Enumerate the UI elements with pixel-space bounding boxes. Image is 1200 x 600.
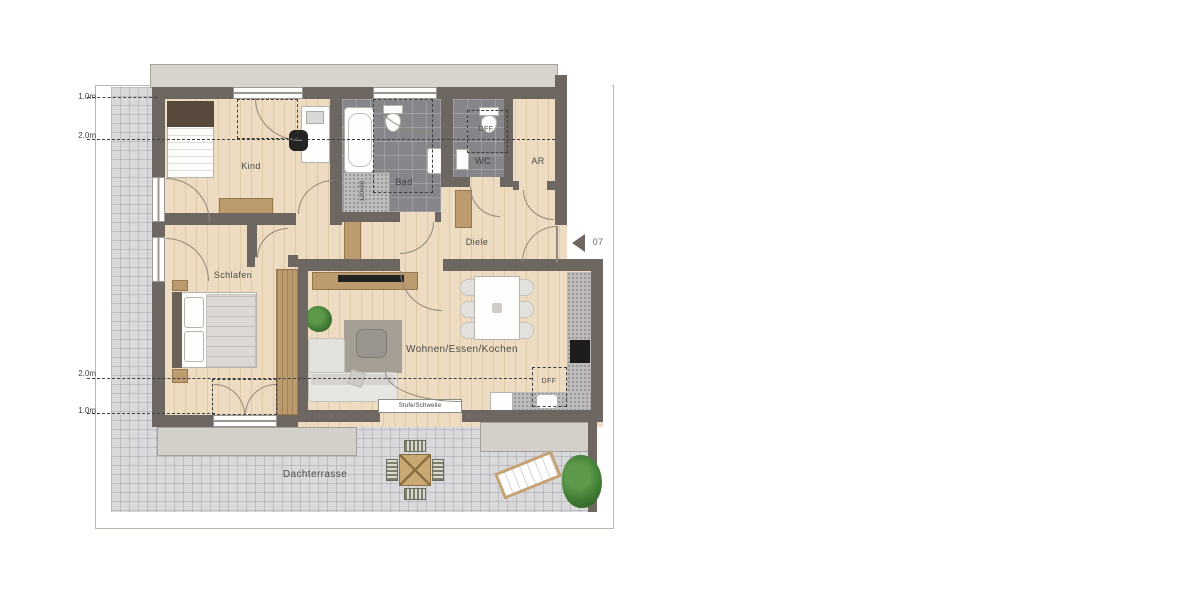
window-schlafen-terrace (213, 415, 277, 427)
roof-window-label-wc: DFF (466, 126, 506, 133)
wall (547, 181, 555, 190)
wall (152, 222, 165, 237)
kitchen-appliance (490, 392, 513, 411)
wall (152, 415, 213, 427)
room-label-dachterrasse: Dachterrasse (280, 469, 350, 480)
armchair (308, 338, 345, 374)
entrance-direction-icon (572, 234, 585, 252)
pillow (184, 297, 204, 328)
nightstand (172, 369, 188, 383)
duvet (206, 294, 256, 367)
facade-step-right (480, 422, 593, 452)
dining-chair (518, 279, 534, 296)
nightstand (172, 280, 188, 291)
sideboard-kind (219, 198, 273, 214)
room-label-schlafen: Schlafen (205, 270, 261, 280)
wall (342, 212, 400, 222)
window-schlafen-left (152, 237, 165, 282)
wall (462, 410, 603, 422)
height-line-1m-top (87, 97, 157, 98)
tv (338, 275, 404, 282)
roof-window-label-kitchen: DFF (531, 378, 567, 385)
window-bad-top (373, 87, 437, 99)
roof-edge-band (150, 64, 558, 88)
plant-living (306, 306, 332, 332)
wall (441, 87, 453, 187)
threshold-label: Stufe/Schwelle (399, 403, 442, 409)
wall (152, 87, 165, 177)
window-kind-top (233, 87, 303, 99)
wardrobe (276, 269, 298, 415)
wall (298, 410, 380, 422)
desk-laptop (306, 111, 324, 124)
wall (298, 271, 308, 412)
roof-window-outline-kind (237, 99, 298, 139)
cooktop (570, 340, 590, 363)
wall (591, 262, 603, 420)
dimension-label-1m-bottom: 1.0m (66, 406, 96, 415)
wall (152, 282, 165, 427)
wall (435, 212, 441, 222)
unit-number-label: 07 (588, 237, 608, 247)
table-decor (492, 303, 502, 313)
bed-blanket (167, 101, 214, 127)
height-line-1m-bottom (87, 413, 215, 414)
wall (437, 87, 567, 99)
wall (247, 225, 257, 257)
wall (453, 177, 470, 187)
shower-size-label: 120x90 (360, 171, 370, 211)
plant-terrace (562, 455, 602, 508)
dimension-label-1m-top: 1.0m (66, 92, 96, 101)
room-label-ar: AR (518, 156, 558, 166)
terrace-table (399, 454, 431, 486)
bed-headboard (172, 292, 182, 368)
wall (513, 181, 519, 190)
floor-plan-canvas: 120x90 (0, 0, 1200, 600)
wall (288, 255, 298, 267)
dining-chair (518, 322, 534, 339)
roof-window-outline-kitchen (532, 367, 567, 407)
hall-cabinet (455, 190, 472, 228)
terrace-chair (404, 488, 426, 500)
bathtub-basin (348, 113, 372, 167)
height-line-2m-bottom (87, 378, 532, 379)
pillow (184, 331, 204, 362)
hall-cabinet (344, 220, 361, 260)
room-label-wc: WC (463, 156, 503, 166)
roof-window-outline-schlafen (212, 379, 277, 415)
wall (555, 259, 603, 271)
coffee-table (356, 329, 387, 358)
room-label-wohnen: Wohnen/Essen/Kochen (402, 344, 522, 355)
window-kind-left (152, 177, 165, 222)
door-leaf-entrance (556, 226, 558, 262)
wall (298, 259, 400, 271)
room-label-bad: Bad (384, 177, 424, 187)
dining-chair (518, 301, 534, 318)
terrace-chair (404, 440, 426, 452)
dimension-label-2m-top: 2.0m (66, 131, 96, 140)
wall (555, 75, 567, 225)
terrace-chair (386, 459, 398, 481)
dimension-label-2m-bottom: 2.0m (66, 369, 96, 378)
facade-step-left (157, 427, 357, 456)
room-label-kind: Kind (226, 161, 276, 171)
terrace-chair (432, 459, 444, 481)
wall (277, 415, 298, 427)
room-label-diele: Diele (455, 237, 499, 247)
